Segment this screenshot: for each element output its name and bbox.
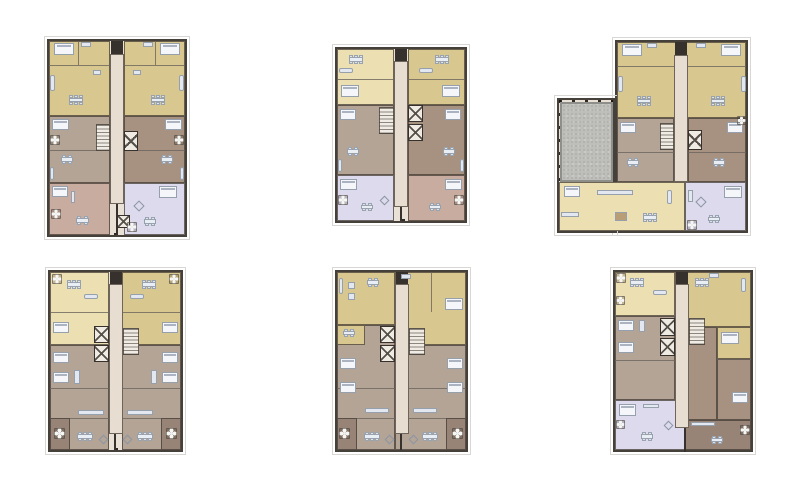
plant	[338, 195, 348, 205]
furniture	[348, 293, 355, 300]
chair	[628, 158, 632, 161]
chair	[359, 61, 363, 64]
plant	[740, 425, 750, 435]
sofa	[741, 76, 746, 92]
dining-table	[641, 213, 659, 222]
sofa	[653, 290, 667, 295]
bed	[54, 43, 74, 55]
chair	[370, 432, 374, 435]
plant	[127, 222, 137, 232]
pillow	[167, 121, 179, 123]
chair	[156, 102, 160, 105]
chair	[67, 286, 71, 289]
pillow	[447, 111, 458, 113]
chair	[354, 147, 358, 150]
dining-table	[365, 278, 381, 287]
dining-table	[149, 95, 167, 105]
chair	[423, 432, 427, 435]
chair	[349, 61, 353, 64]
floor-plan-top-left	[47, 39, 187, 237]
partition-wall	[124, 65, 185, 66]
wall-shaft	[114, 434, 116, 450]
furniture	[143, 42, 153, 47]
furniture	[127, 410, 153, 415]
chair	[84, 222, 88, 225]
circulation-core	[110, 54, 124, 204]
furniture	[151, 370, 157, 384]
staircase	[409, 328, 425, 355]
plant	[169, 274, 179, 284]
partition-wall	[50, 388, 109, 389]
chair	[68, 155, 72, 158]
chair	[709, 215, 713, 218]
chair	[138, 432, 142, 435]
elevator-shaft	[408, 124, 423, 141]
sofa	[338, 159, 342, 172]
chair	[162, 155, 166, 158]
furniture	[74, 370, 80, 384]
chair	[720, 158, 724, 161]
sofa	[130, 294, 144, 299]
sofa	[667, 190, 672, 204]
furniture	[413, 408, 437, 413]
dining-table	[709, 436, 725, 444]
bed	[724, 186, 742, 198]
chair	[653, 213, 657, 216]
staircase	[123, 328, 139, 355]
chair	[634, 158, 638, 161]
plant	[54, 428, 65, 439]
bed	[445, 109, 461, 120]
partition-wall	[615, 360, 675, 361]
chair	[648, 438, 652, 441]
chair	[151, 223, 155, 226]
dining-table	[427, 203, 442, 211]
pillow	[55, 354, 66, 356]
dining-table	[639, 432, 655, 441]
sofa	[741, 278, 746, 292]
chair	[78, 438, 82, 441]
floor-plans-sheet	[0, 0, 800, 491]
chair	[77, 286, 81, 289]
chair	[362, 203, 366, 206]
sofa	[50, 75, 55, 91]
dining-table	[420, 432, 440, 441]
plans-canvas	[0, 0, 800, 491]
wall-shaft	[395, 49, 407, 61]
chair	[711, 96, 715, 99]
chair	[368, 278, 372, 281]
chair	[714, 164, 718, 167]
partition-wall	[50, 312, 109, 313]
bed	[162, 322, 178, 333]
bed	[340, 382, 356, 393]
bed	[52, 186, 68, 197]
elevator-shaft	[124, 131, 138, 151]
furniture	[696, 43, 706, 48]
chair	[435, 61, 439, 64]
bed	[159, 186, 177, 198]
wall-shaft	[400, 434, 402, 450]
bed	[732, 392, 748, 403]
plant	[616, 273, 626, 283]
pillow	[449, 384, 460, 386]
chair	[628, 164, 632, 167]
circulation-core	[675, 284, 689, 428]
furniture	[691, 422, 715, 426]
chair	[152, 286, 156, 289]
sofa	[339, 278, 343, 294]
chair	[445, 61, 449, 64]
bed	[618, 342, 634, 353]
chair	[151, 95, 155, 98]
chair	[168, 155, 172, 158]
chair	[630, 284, 634, 287]
bed	[447, 382, 463, 393]
chair	[640, 278, 644, 281]
furniture	[93, 70, 101, 75]
dining-table	[625, 158, 641, 167]
bed	[340, 179, 357, 190]
pillow	[726, 188, 739, 190]
dining-table	[341, 329, 357, 337]
plant	[339, 428, 350, 439]
bed	[53, 352, 69, 363]
elevator-shaft	[380, 345, 395, 362]
chair	[450, 153, 454, 156]
chair	[450, 147, 454, 150]
bed	[620, 122, 636, 133]
furniture	[561, 212, 579, 217]
chair	[653, 219, 657, 222]
dining-table	[441, 147, 457, 156]
chair	[643, 219, 647, 222]
dining-table	[140, 280, 158, 289]
wall-shaft	[400, 207, 402, 221]
wall-shaft	[676, 272, 688, 284]
elevator-shaft	[660, 318, 675, 336]
bed	[53, 322, 69, 333]
bed	[618, 320, 634, 331]
wall-shaft	[684, 428, 686, 452]
chair	[354, 55, 358, 58]
chair	[67, 280, 71, 283]
plant	[50, 135, 60, 145]
circulation-core	[395, 284, 409, 434]
bed	[53, 372, 69, 383]
dining-table	[347, 55, 365, 64]
pillow	[57, 45, 72, 47]
chair	[168, 161, 172, 164]
chair	[423, 438, 427, 441]
staircase	[379, 107, 394, 134]
chair	[705, 278, 709, 281]
chair	[440, 61, 444, 64]
plant	[174, 135, 184, 145]
bed	[447, 358, 463, 369]
chair	[147, 280, 151, 283]
bed	[165, 119, 182, 130]
furniture	[615, 212, 627, 221]
chair	[428, 438, 432, 441]
pillow	[620, 322, 631, 324]
sofa	[460, 159, 464, 172]
dining-table	[359, 203, 374, 211]
circulation-core	[394, 61, 408, 207]
dining-table	[635, 96, 653, 106]
staircase	[660, 123, 674, 150]
sofa	[419, 68, 433, 73]
chair	[712, 436, 716, 439]
partition-wall	[122, 312, 181, 313]
chair	[156, 95, 160, 98]
chair	[69, 102, 73, 105]
chair	[714, 158, 718, 161]
bed	[162, 372, 178, 383]
pillow	[163, 45, 178, 47]
chair	[354, 61, 358, 64]
chair	[151, 102, 155, 105]
pillow	[342, 111, 353, 113]
chair	[445, 55, 449, 58]
pillow	[55, 374, 66, 376]
chair	[147, 286, 151, 289]
elevator-shaft	[688, 130, 702, 150]
chair	[709, 220, 713, 223]
chair	[354, 153, 358, 156]
chair	[79, 95, 83, 98]
pillow	[54, 121, 66, 123]
bed	[341, 85, 359, 97]
chair	[700, 284, 704, 287]
floor-plan-bottom-left	[48, 270, 183, 452]
chair	[433, 432, 437, 435]
plant	[454, 195, 464, 205]
pillow	[161, 188, 174, 190]
dining-table	[345, 147, 361, 156]
pillow	[164, 354, 175, 356]
chair	[152, 280, 156, 283]
chair	[642, 438, 646, 441]
dining-table	[59, 155, 75, 164]
chair	[78, 432, 82, 435]
elevator-shaft	[94, 326, 109, 343]
plant	[737, 116, 746, 125]
plant	[166, 428, 177, 439]
chair	[350, 329, 354, 332]
chair	[715, 220, 719, 223]
chair	[436, 203, 440, 206]
chair	[62, 161, 66, 164]
bed	[564, 186, 580, 197]
chair	[648, 219, 652, 222]
elevator-shaft	[380, 326, 395, 343]
wall-shaft	[110, 272, 122, 284]
circulation-core	[109, 284, 123, 434]
partition-wall	[688, 152, 746, 153]
bed	[445, 298, 463, 310]
furniture	[365, 408, 389, 413]
chair	[695, 284, 699, 287]
chair	[77, 216, 81, 219]
sofa	[618, 76, 623, 92]
furniture	[78, 410, 104, 415]
partition-wall	[617, 152, 674, 153]
chair	[634, 164, 638, 167]
pillow	[723, 334, 736, 336]
partition-wall	[155, 41, 156, 65]
chair	[350, 334, 354, 337]
bed	[721, 332, 739, 344]
partition-wall	[78, 41, 79, 65]
chair	[348, 153, 352, 156]
dining-table	[65, 280, 83, 289]
bed	[160, 43, 180, 55]
furniture	[709, 273, 719, 278]
partition-wall	[408, 79, 465, 80]
dining-table	[75, 432, 95, 441]
chair	[148, 432, 152, 435]
chair	[648, 432, 652, 435]
pillow	[55, 324, 66, 326]
chair	[375, 432, 379, 435]
partition-wall	[122, 388, 181, 389]
chair	[349, 55, 353, 58]
floor-plan-top-middle	[335, 47, 467, 223]
pillow	[734, 394, 745, 396]
chair	[344, 334, 348, 337]
chair	[138, 438, 142, 441]
chair	[716, 103, 720, 106]
furniture	[597, 190, 633, 195]
chair	[69, 95, 73, 98]
dining-table	[159, 155, 175, 164]
chair	[695, 278, 699, 281]
chair	[430, 203, 434, 206]
chair	[84, 216, 88, 219]
chair	[375, 438, 379, 441]
furniture	[133, 70, 141, 75]
partition-wall	[49, 65, 110, 66]
chair	[359, 55, 363, 58]
chair	[344, 329, 348, 332]
partition-wall	[431, 272, 432, 312]
chair	[74, 102, 78, 105]
pillow	[622, 124, 633, 126]
wall-shaft	[116, 204, 118, 235]
chair	[642, 103, 646, 106]
dining-table	[67, 95, 85, 105]
chair	[712, 441, 716, 444]
chair	[148, 438, 152, 441]
pillow	[343, 87, 356, 89]
wall-shaft	[675, 42, 687, 55]
bed	[162, 352, 178, 363]
chair	[635, 284, 639, 287]
wall-shaft	[111, 41, 123, 54]
chair	[436, 208, 440, 211]
bed	[52, 119, 69, 130]
sofa	[180, 167, 184, 180]
chair	[88, 438, 92, 441]
furniture	[81, 42, 91, 47]
furniture	[647, 43, 657, 48]
furniture	[401, 274, 411, 279]
pillow	[449, 360, 460, 362]
chair	[430, 208, 434, 211]
dining-table	[707, 215, 721, 223]
chair	[72, 286, 76, 289]
staircase	[689, 318, 705, 345]
chair	[721, 96, 725, 99]
chair	[640, 284, 644, 287]
floor-plan-bottom-middle	[335, 270, 468, 452]
chair	[72, 280, 76, 283]
dining-table	[711, 158, 727, 167]
chair	[143, 438, 147, 441]
sofa	[179, 75, 184, 91]
chair	[642, 432, 646, 435]
dining-table	[135, 432, 155, 441]
furniture	[71, 191, 75, 203]
chair	[716, 96, 720, 99]
chair	[370, 438, 374, 441]
chair	[79, 102, 83, 105]
elevator-shaft	[660, 338, 675, 356]
chair	[642, 96, 646, 99]
dining-table	[709, 96, 727, 106]
pillow	[625, 46, 640, 48]
chair	[374, 278, 378, 281]
chair	[142, 280, 146, 283]
sofa	[339, 68, 353, 73]
chair	[145, 223, 149, 226]
pillow	[621, 406, 633, 408]
plant	[616, 420, 625, 429]
pillow	[342, 181, 354, 183]
chair	[637, 103, 641, 106]
dining-table	[628, 278, 646, 287]
chair	[715, 215, 719, 218]
floor-plan-top-right	[557, 40, 748, 233]
dining-table	[143, 217, 157, 226]
plant	[616, 296, 625, 305]
chair	[711, 103, 715, 106]
bed	[445, 179, 462, 190]
staircase	[96, 124, 110, 151]
chair	[348, 147, 352, 150]
pillow	[342, 384, 353, 386]
chair	[161, 95, 165, 98]
plant	[51, 209, 61, 219]
chair	[444, 153, 448, 156]
chair	[637, 96, 641, 99]
dining-table	[693, 278, 711, 287]
chair	[720, 164, 724, 167]
chair	[142, 286, 146, 289]
partition-wall	[681, 66, 746, 67]
chair	[83, 432, 87, 435]
chair	[368, 203, 372, 206]
plant	[52, 274, 62, 284]
elevator-shaft	[94, 345, 109, 362]
roof-terrace	[560, 102, 613, 182]
pillow	[724, 46, 739, 48]
dining-table	[433, 55, 451, 64]
chair	[162, 161, 166, 164]
chair	[718, 436, 722, 439]
sofa	[84, 294, 98, 299]
